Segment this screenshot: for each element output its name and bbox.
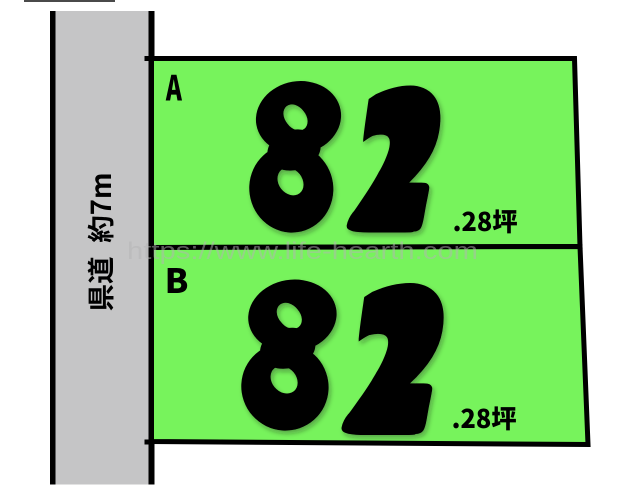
svg-text:https://www.life-hearth.com: https://www.life-hearth.com [127, 238, 478, 265]
